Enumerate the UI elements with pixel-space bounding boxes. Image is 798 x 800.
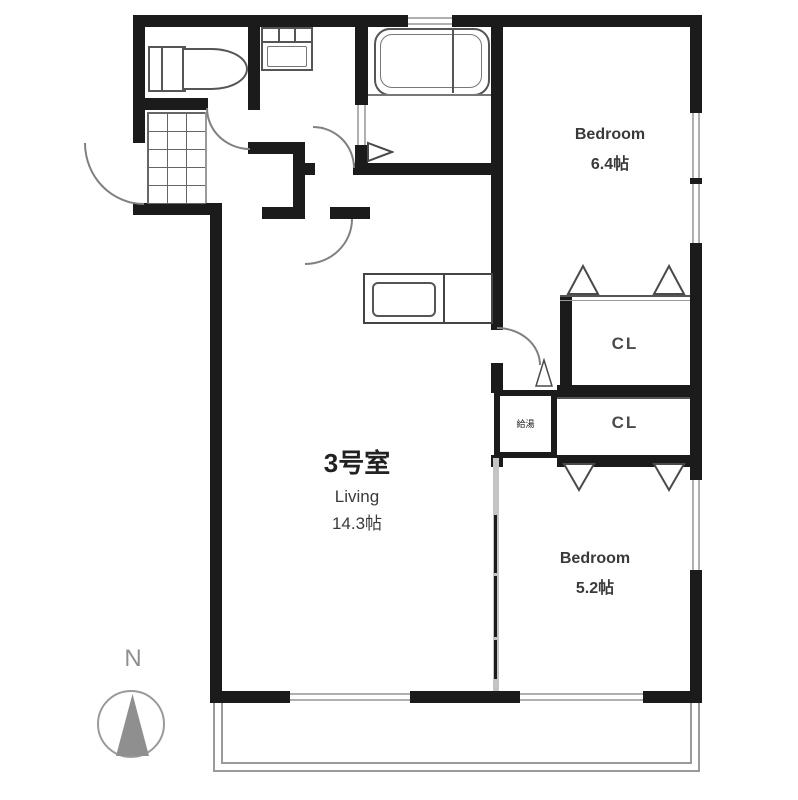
bedroom2-name: Bedroom [535,550,655,568]
wall-left-upper [133,15,145,143]
washbasin-icon [261,27,313,71]
bathroom-door-gap [355,105,368,145]
unit-label: 3号室 [297,443,417,480]
wall-closet1-bottom [557,385,702,397]
bedroom1-door-leaf-icon [534,358,554,388]
living-door-arc [305,219,353,265]
wall-hall-bottom-a [262,207,305,219]
window-bathroom [408,15,452,27]
bathtub-icon [374,28,490,96]
entry-door-arc [84,143,144,205]
bathroom-folding-door-icon [366,141,394,163]
utility-box: 給湯 [494,390,557,458]
wall-hall-bottom-b [330,207,370,219]
wall-toilet-bottom [133,98,208,110]
wall-living-left [210,203,222,703]
bathroom-floor-line [368,94,491,96]
toilet-bowl-icon [182,48,248,90]
floor-plan: 給湯 3号室 Living 14.3帖 Bedroom 6.4帖 Bedroom… [0,0,798,800]
bedroom2-area: 5.2帖 [535,574,655,598]
closet2-label: CL [585,413,665,433]
genkan-tile-grid [147,112,206,204]
living-name: Living [297,487,417,507]
living-area: 14.3帖 [297,509,417,534]
wall-kitchen-top-b [353,163,503,175]
kitchen-counter-icon [363,273,493,324]
bedroom1-name: Bedroom [545,126,675,144]
toilet-tank-icon [148,46,186,92]
window-bedroom2 [690,480,702,570]
genkan-step-line [205,112,207,203]
closet1-front-line2 [560,300,690,301]
kitchen-door-arc [313,126,355,168]
sliding-partition-panel [494,515,497,573]
washroom-door-arc [206,108,250,150]
window-bedroom1-b [690,184,702,243]
compass-north-label: N [103,645,163,673]
closet1-folding-door-icon [652,264,686,296]
closet2-folding-door-icon [652,462,686,492]
wall-bedroom1-left-stub [491,363,503,393]
wall-toilet-right [248,15,260,110]
compass-icon: N [90,645,180,770]
sliding-partition-panel [494,576,497,637]
window-living [290,691,410,703]
balcony-outline-inner [221,697,692,764]
closet2-folding-door-icon [562,462,596,492]
closet2-front-line [557,397,690,399]
closet1-label: CL [585,334,665,354]
window-bedroom2-bottom [520,691,643,703]
wall-closet1-left [560,295,572,397]
window-bedroom1-a [690,113,702,178]
wall-genkan-bottom [133,203,210,215]
wall-bath-left-upper [355,15,368,105]
utility-label: 給湯 [500,417,551,430]
kitchen-sink-icon [372,282,436,317]
sliding-partition-panel [494,640,497,679]
closet1-folding-door-icon [566,264,600,296]
bedroom1-area: 6.4帖 [545,150,675,174]
